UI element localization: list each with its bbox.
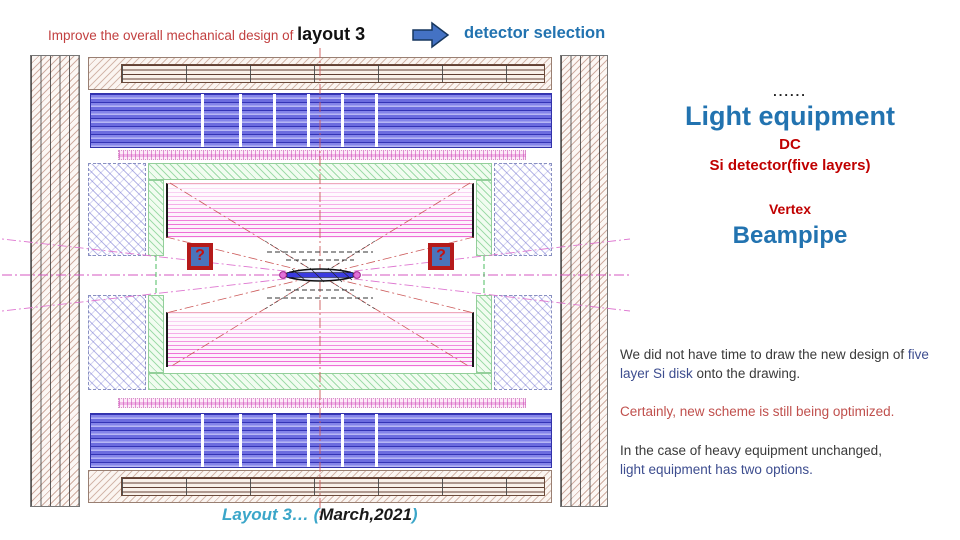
slide: Improve the overall mechanical design of…	[0, 0, 960, 540]
note-si-disk-before: We did not have time to draw the new des…	[620, 347, 908, 362]
construction-lines	[30, 55, 610, 507]
dc-label: DC	[620, 136, 960, 153]
note-two-options-line2: light equipment has two options.	[620, 460, 944, 479]
title-bold-text: layout 3	[297, 24, 365, 44]
caption-layout-text: Layout 3… (	[222, 505, 319, 524]
question-mark-badge-right: ?	[428, 243, 454, 270]
note-two-options: In the case of heavy equipment unchanged…	[620, 441, 944, 479]
cad-drawing: ? ?	[30, 55, 610, 507]
detector-selection-label: detector selection	[464, 24, 605, 43]
note-si-disk: We did not have time to draw the new des…	[620, 345, 944, 383]
slide-title: Improve the overall mechanical design of…	[48, 24, 365, 45]
right-arrow-icon	[412, 21, 450, 54]
caption-close-paren: )	[412, 505, 418, 524]
light-equipment-heading: Light equipment	[620, 101, 960, 132]
beampipe-heading: Beampipe	[620, 222, 960, 250]
vertex-label: Vertex	[620, 201, 960, 217]
drawing-caption: Layout 3… (March,2021)	[222, 505, 418, 525]
question-mark-badge-left: ?	[187, 243, 213, 270]
title-red-text: Improve the overall mechanical design of	[48, 28, 297, 43]
note-si-disk-after: onto the drawing.	[693, 366, 800, 381]
note-two-options-line1: In the case of heavy equipment unchanged…	[620, 441, 944, 460]
si-detector-label: Si detector(five layers)	[620, 157, 960, 174]
beampipe-assembly	[280, 268, 361, 282]
note-optimized: Certainly, new scheme is still being opt…	[620, 402, 944, 421]
caption-date-text: March,2021	[319, 505, 412, 524]
ellipsis-label: ......	[620, 84, 960, 99]
